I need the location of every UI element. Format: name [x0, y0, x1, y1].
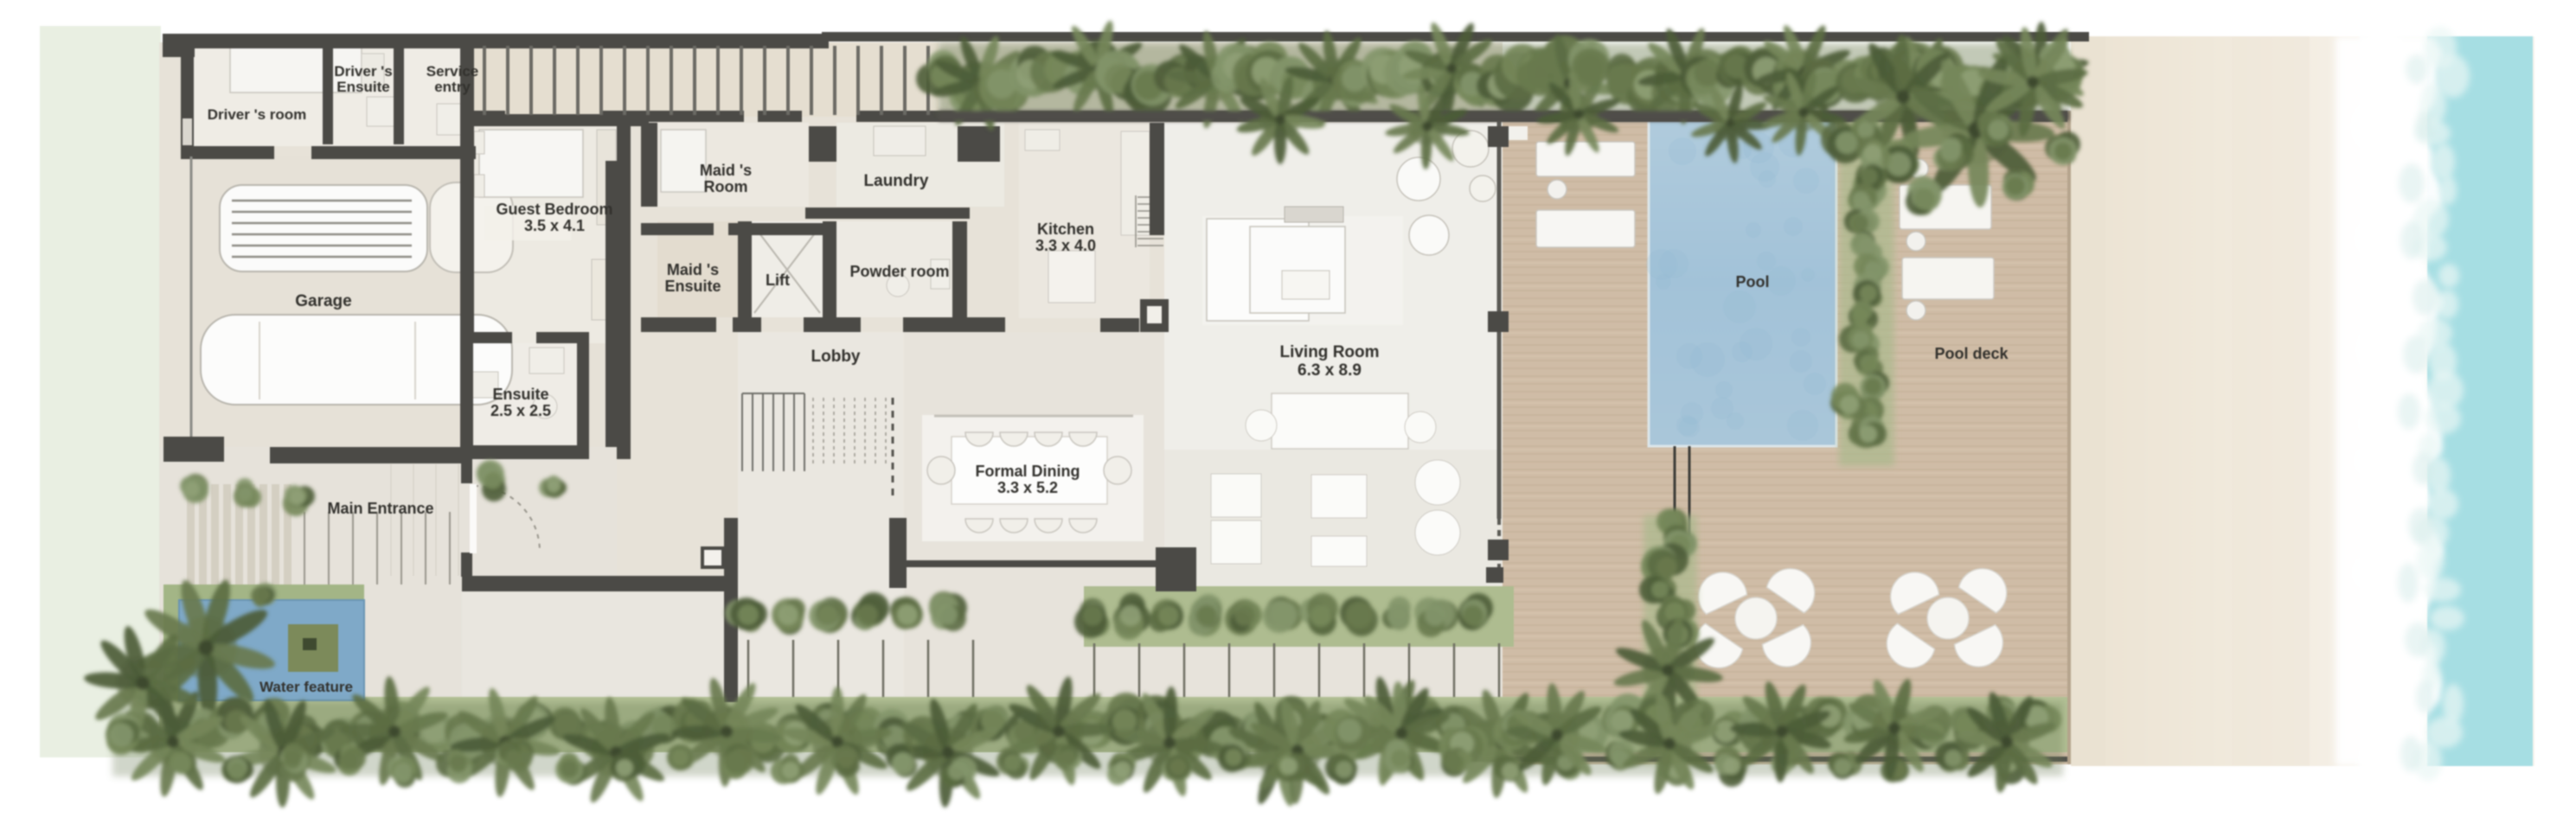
svg-text:Ensuite2.5 x 2.5: Ensuite2.5 x 2.5 — [490, 386, 551, 419]
svg-text:Kitchen3.3 x 4.0: Kitchen3.3 x 4.0 — [1035, 220, 1096, 254]
svg-text:Main Entrance: Main Entrance — [327, 500, 433, 517]
svg-text:Lift: Lift — [766, 271, 790, 289]
svg-text:Pool: Pool — [1736, 273, 1770, 291]
svg-text:Garage: Garage — [295, 292, 351, 310]
svg-text:Powder room: Powder room — [849, 263, 949, 280]
svg-text:Water feature: Water feature — [260, 679, 353, 695]
svg-text:Maid 'sRoom: Maid 'sRoom — [700, 162, 752, 195]
svg-text:Driver 'sEnsuite: Driver 'sEnsuite — [334, 63, 392, 95]
svg-text:Maid 'sEnsuite: Maid 'sEnsuite — [664, 261, 721, 295]
svg-text:Pool deck: Pool deck — [1934, 345, 2009, 362]
svg-text:Lobby: Lobby — [811, 348, 861, 366]
svg-text:Laundry: Laundry — [864, 172, 929, 190]
svg-text:Driver 's room: Driver 's room — [208, 106, 307, 123]
